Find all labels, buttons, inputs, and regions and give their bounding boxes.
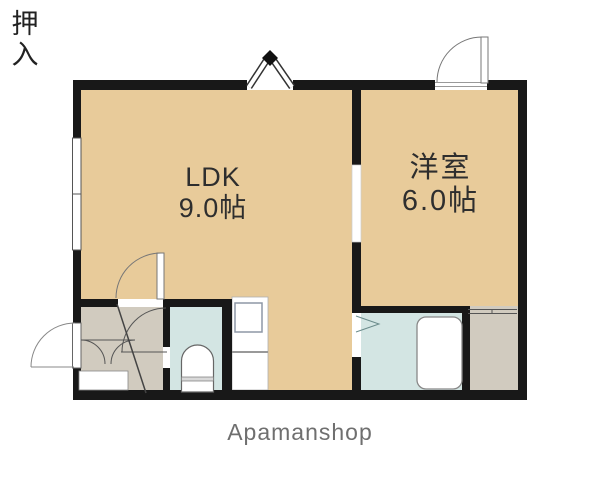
- ldk-door-opening: [118, 299, 163, 307]
- bathtub-icon: [417, 317, 462, 389]
- door-leaf: [481, 37, 488, 83]
- bath-door-opening: [352, 313, 361, 357]
- toilet-bowl: [182, 345, 214, 392]
- room-label-western: 洋室 6.0帖: [363, 152, 518, 218]
- floorplan-drawing: [0, 0, 600, 480]
- door-leaf: [73, 323, 82, 368]
- western-size: 6.0帖: [363, 185, 518, 218]
- wall-toilet-right: [222, 299, 232, 390]
- toilet-door-opening: [163, 347, 170, 368]
- brand-logo-text: Apamanshop: [0, 419, 600, 446]
- wall-bath-top: [352, 306, 470, 313]
- wall-bath-right: [462, 306, 470, 390]
- wall-right: [518, 80, 527, 400]
- wall-top-left: [73, 80, 247, 90]
- door-leaf: [157, 253, 164, 299]
- toilet-icon: [182, 345, 214, 392]
- casement-leaf-right: [274, 61, 292, 87]
- door-swing-arc: [437, 37, 482, 82]
- wall-left-1: [73, 80, 81, 138]
- wall-entry-toilet-2: [163, 368, 170, 390]
- wall-bottom: [73, 390, 527, 400]
- wall-entry-top-2: [163, 299, 232, 307]
- wall-divider-2: [352, 242, 361, 313]
- western-name: 洋室: [363, 152, 518, 185]
- wall-entry-toilet-1: [163, 307, 170, 347]
- floorplan: LDK 9.0帖 洋室 6.0帖 押入 Apamanshop: [0, 0, 600, 480]
- ldk-name: LDK: [128, 162, 298, 193]
- western-room-door-icon: [435, 37, 488, 87]
- casement-leaf-left: [249, 61, 266, 87]
- wall-left-2: [73, 250, 81, 323]
- wall-divider-1: [352, 90, 361, 165]
- casement-window-icon: [249, 50, 292, 87]
- closet-floor: [470, 306, 518, 390]
- door-swing-arc: [31, 323, 75, 367]
- room-divider-opening: [352, 165, 361, 242]
- wall-entry-top-1: [81, 299, 118, 307]
- toilet-seat-band: [182, 377, 214, 381]
- wall-top-mid: [293, 80, 435, 90]
- entry-door-icon: [31, 323, 81, 368]
- room-label-ldk: LDK 9.0帖: [128, 162, 298, 224]
- entry-step-icon: [79, 371, 128, 390]
- kitchen-sink-icon: [235, 303, 262, 332]
- wall-divider-3: [352, 357, 361, 390]
- ldk-size: 9.0帖: [128, 193, 298, 224]
